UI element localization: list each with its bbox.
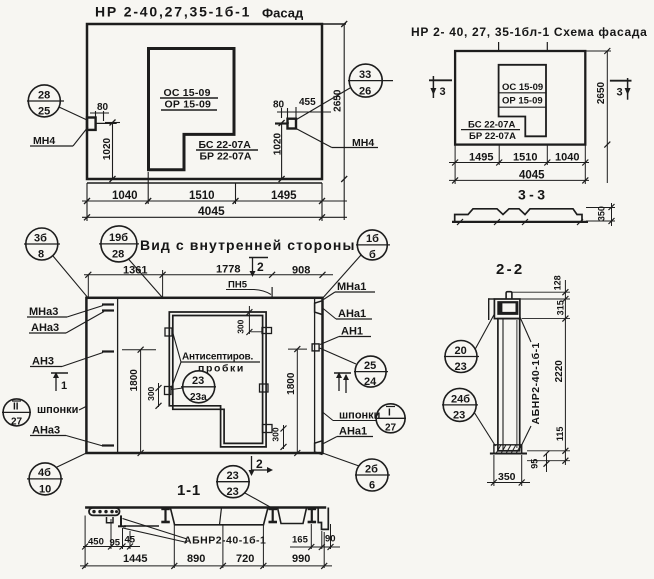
svg-text:ОР 15-09: ОР 15-09 bbox=[165, 99, 212, 111]
svg-text:80: 80 bbox=[97, 102, 109, 113]
svg-text:1778: 1778 bbox=[216, 264, 240, 276]
svg-text:300: 300 bbox=[146, 386, 156, 400]
svg-text:АНа3: АНа3 bbox=[32, 425, 60, 437]
svg-text:3: 3 bbox=[440, 86, 446, 98]
svg-text:10: 10 bbox=[39, 484, 51, 496]
svg-text:НР 2- 40, 27, 35-1бл-1 Схема ф: НР 2- 40, 27, 35-1бл-1 Схема фасада bbox=[411, 25, 648, 39]
svg-text:2: 2 bbox=[256, 457, 263, 471]
svg-text:128: 128 bbox=[553, 275, 563, 290]
svg-text:2б: 2б bbox=[365, 464, 378, 476]
svg-text:95: 95 bbox=[530, 459, 540, 469]
svg-text:1510: 1510 bbox=[189, 190, 215, 202]
svg-text:АН3: АН3 bbox=[32, 356, 54, 368]
svg-text:Антисептиров.: Антисептиров. bbox=[182, 352, 253, 363]
svg-text:БР 22-07А: БР 22-07А bbox=[469, 131, 516, 142]
svg-text:4045: 4045 bbox=[198, 204, 225, 218]
svg-text:Фасад: Фасад bbox=[262, 6, 304, 21]
svg-text:ОР 15-09: ОР 15-09 bbox=[502, 96, 543, 107]
svg-text:БС 22-07А: БС 22-07А bbox=[199, 139, 252, 151]
svg-text:1: 1 bbox=[61, 380, 67, 392]
svg-text:908: 908 bbox=[292, 265, 310, 277]
svg-text:БС 22-07А: БС 22-07А bbox=[468, 120, 516, 131]
svg-text:25: 25 bbox=[364, 360, 376, 372]
svg-text:25: 25 bbox=[38, 106, 50, 118]
svg-text:20: 20 bbox=[455, 345, 467, 357]
svg-text:2650: 2650 bbox=[332, 89, 343, 112]
svg-text:350: 350 bbox=[596, 206, 606, 221]
svg-text:1800: 1800 bbox=[286, 372, 297, 395]
svg-text:90: 90 bbox=[325, 534, 336, 545]
svg-text:I: I bbox=[388, 408, 391, 419]
svg-text:2650: 2650 bbox=[596, 81, 607, 104]
svg-text:8: 8 bbox=[38, 249, 44, 261]
svg-text:НР 2-40,27,35-1б-1: НР 2-40,27,35-1б-1 bbox=[95, 4, 251, 20]
svg-text:95: 95 bbox=[110, 538, 121, 549]
svg-text:Вид с внутренней стороны: Вид с внутренней стороны bbox=[140, 237, 356, 253]
svg-text:315: 315 bbox=[556, 300, 566, 315]
svg-text:б: б bbox=[369, 249, 376, 261]
svg-text:28: 28 bbox=[38, 90, 50, 102]
svg-text:1б: 1б bbox=[366, 233, 379, 245]
svg-text:1495: 1495 bbox=[469, 152, 493, 164]
svg-text:1040: 1040 bbox=[555, 152, 579, 164]
svg-text:19б: 19б bbox=[109, 232, 128, 244]
svg-text:1800: 1800 bbox=[129, 369, 140, 392]
svg-text:23: 23 bbox=[227, 486, 239, 498]
svg-text:2: 2 bbox=[257, 260, 264, 274]
svg-text:24б: 24б bbox=[451, 394, 470, 406]
svg-text:350: 350 bbox=[498, 471, 516, 483]
svg-text:АБНР2-40-1б-1: АБНР2-40-1б-1 bbox=[184, 535, 266, 547]
svg-text:990: 990 bbox=[292, 553, 310, 565]
svg-text:300: 300 bbox=[236, 319, 246, 333]
svg-text:33: 33 bbox=[359, 69, 371, 81]
svg-text:ОС 15-09: ОС 15-09 bbox=[164, 87, 211, 99]
svg-text:ПН5: ПН5 bbox=[228, 280, 248, 291]
svg-text:23: 23 bbox=[192, 375, 204, 387]
svg-text:3: 3 bbox=[617, 87, 623, 99]
svg-text:БР 22-07А: БР 22-07А bbox=[200, 151, 252, 163]
svg-text:27: 27 bbox=[385, 423, 397, 434]
svg-text:МНа3: МНа3 bbox=[29, 306, 58, 318]
svg-text:2220: 2220 bbox=[554, 360, 565, 383]
svg-text:АН1: АН1 bbox=[341, 326, 363, 338]
svg-text:1361: 1361 bbox=[123, 265, 147, 277]
svg-text:6: 6 bbox=[369, 480, 375, 492]
svg-text:4045: 4045 bbox=[519, 170, 545, 182]
svg-text:шпонки: шпонки bbox=[339, 410, 380, 422]
svg-text:1445: 1445 bbox=[123, 553, 147, 565]
svg-text:АБНР2-40-1б-1: АБНР2-40-1б-1 bbox=[530, 342, 542, 424]
svg-text:1040: 1040 bbox=[112, 190, 138, 202]
svg-text:3-3: 3-3 bbox=[518, 187, 548, 203]
svg-text:26: 26 bbox=[359, 86, 371, 98]
svg-text:1495: 1495 bbox=[271, 190, 297, 202]
svg-text:720: 720 bbox=[236, 553, 254, 565]
svg-text:1020: 1020 bbox=[272, 133, 283, 156]
svg-text:ОС 15-09: ОС 15-09 bbox=[502, 82, 543, 93]
svg-text:455: 455 bbox=[299, 97, 316, 108]
svg-text:МН4: МН4 bbox=[33, 135, 55, 147]
svg-text:23: 23 bbox=[453, 410, 465, 422]
svg-text:шпонки: шпонки bbox=[37, 404, 78, 416]
svg-text:АНа1: АНа1 bbox=[339, 426, 367, 438]
svg-text:МНа1: МНа1 bbox=[337, 281, 366, 293]
svg-text:АНа3: АНа3 bbox=[31, 322, 59, 334]
svg-text:2-2: 2-2 bbox=[496, 261, 525, 278]
svg-text:300: 300 bbox=[271, 427, 281, 441]
svg-text:1020: 1020 bbox=[102, 137, 113, 160]
svg-text:45: 45 bbox=[125, 535, 136, 546]
svg-text:28: 28 bbox=[112, 249, 124, 261]
svg-text:80: 80 bbox=[273, 100, 285, 111]
svg-text:1-1: 1-1 bbox=[177, 482, 201, 499]
svg-text:115: 115 bbox=[555, 427, 565, 442]
svg-text:450: 450 bbox=[88, 537, 104, 548]
svg-text:АНа1: АНа1 bbox=[338, 308, 366, 320]
svg-text:890: 890 bbox=[187, 553, 205, 565]
svg-text:24: 24 bbox=[364, 376, 377, 388]
svg-text:1510: 1510 bbox=[513, 152, 537, 164]
svg-text:23а: 23а bbox=[190, 392, 207, 403]
svg-text:4б: 4б bbox=[38, 467, 51, 479]
svg-text:II: II bbox=[13, 402, 19, 413]
svg-text:23: 23 bbox=[227, 470, 239, 482]
svg-text:23: 23 bbox=[455, 361, 467, 373]
svg-text:165: 165 bbox=[292, 535, 309, 546]
svg-text:3б: 3б bbox=[34, 233, 47, 245]
svg-text:27: 27 bbox=[11, 417, 23, 428]
